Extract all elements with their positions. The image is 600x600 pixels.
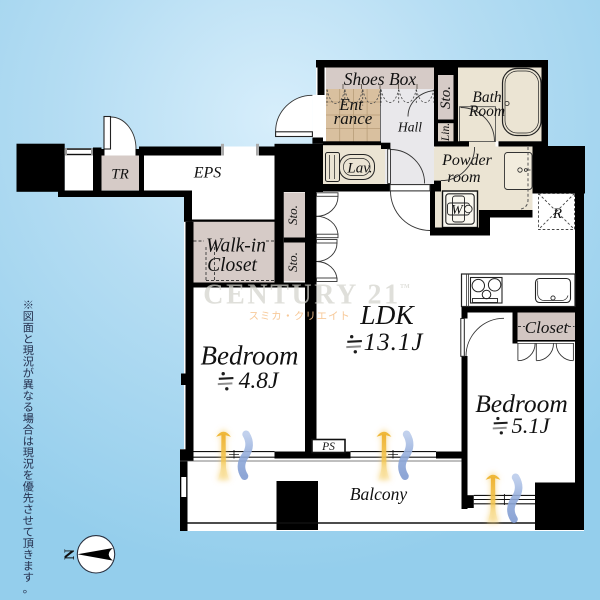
svg-text:4.8J: 4.8J	[239, 368, 280, 394]
svg-text:TM: TM	[400, 284, 410, 290]
svg-text:Lin.: Lin.	[440, 123, 452, 142]
svg-text:13.1J: 13.1J	[364, 329, 425, 356]
svg-text:Closet: Closet	[525, 318, 570, 337]
svg-text:Balcony: Balcony	[350, 484, 408, 504]
svg-text:Sto.: Sto.	[438, 86, 454, 109]
svg-text:Lav.: Lav.	[346, 161, 372, 177]
svg-text:PS: PS	[321, 441, 335, 453]
svg-text:TR: TR	[111, 167, 129, 183]
svg-text:Hall: Hall	[397, 120, 422, 135]
svg-text:Room: Room	[468, 103, 505, 120]
svg-text:rance: rance	[334, 109, 373, 128]
svg-text:Powder: Powder	[441, 152, 493, 169]
svg-text:Sto.: Sto.	[285, 205, 300, 225]
svg-text:W: W	[451, 202, 464, 217]
svg-text:5.1J: 5.1J	[511, 413, 550, 438]
svg-text:N: N	[62, 549, 78, 560]
svg-text:EPS: EPS	[193, 165, 222, 182]
svg-text:Bedroom: Bedroom	[201, 341, 299, 371]
svg-text:R: R	[552, 206, 562, 222]
svg-text:Sto.: Sto.	[285, 252, 300, 272]
svg-text:Walk-in: Walk-in	[206, 236, 266, 257]
svg-text:LDK: LDK	[359, 299, 415, 330]
